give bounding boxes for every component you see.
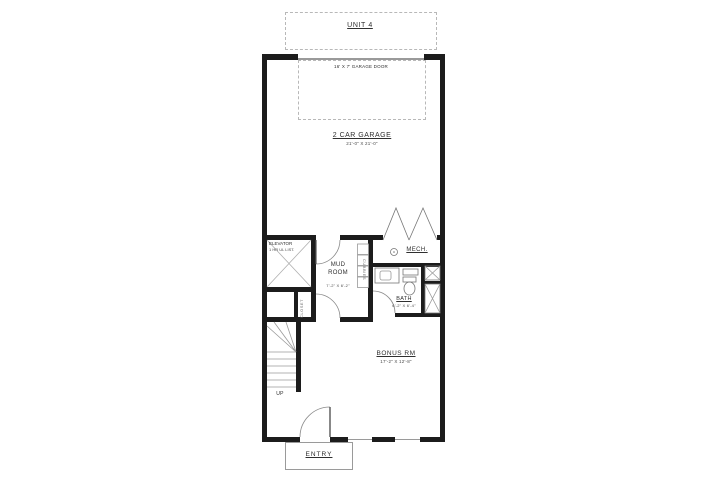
closet-label: CLOSET: [299, 312, 304, 318]
elevator-rating-note: 1 HR UL LIST.: [269, 247, 311, 252]
garage-label: 2 CAR GARAGE: [312, 132, 412, 141]
mud-room-dims: 7'-2" X 6'-2": [318, 283, 358, 288]
entry-label: ENTRY: [286, 451, 352, 459]
floor-plan: UNIT 4 16' X 7' GARAGE DOOR: [0, 0, 720, 480]
mech-label: MECH.: [400, 247, 434, 255]
bath-dims: 6'-2" X 6'-4": [386, 303, 422, 308]
bonus-room-dims: 17'-2" X 12'-8": [360, 359, 432, 365]
stairs-up-label: UP: [272, 391, 288, 397]
garage-dims: 21'-0" X 21'-0": [312, 141, 412, 147]
elevator-label: ELEVATOR: [269, 241, 311, 247]
bath-label: BATH: [388, 296, 420, 303]
entry-stoop: ENTRY: [285, 442, 353, 470]
cubbies-label: CUBBIES: [361, 250, 367, 290]
bonus-room-label: BONUS RM: [360, 350, 432, 358]
mud-room-label: MUD ROOM: [321, 262, 355, 277]
plan-linework: [0, 0, 720, 480]
